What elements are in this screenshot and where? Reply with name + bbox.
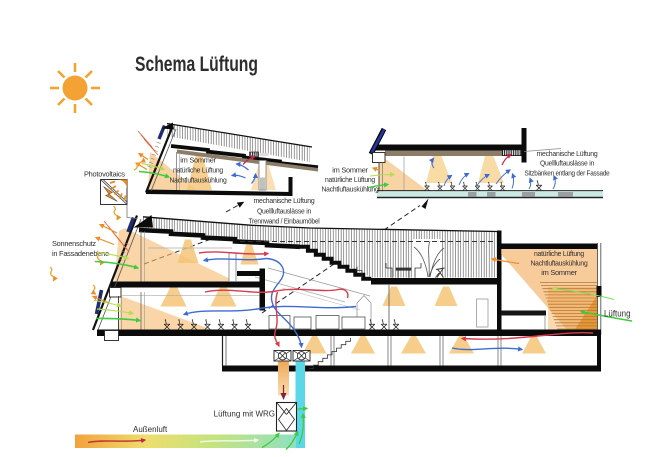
svg-text:Nachtluftauskühlung: Nachtluftauskühlung xyxy=(170,176,227,185)
svg-text:im Sommer: im Sommer xyxy=(180,156,216,165)
svg-text:natürliche Lüftung: natürliche Lüftung xyxy=(173,166,223,175)
svg-text:mechanische Lüftung: mechanische Lüftung xyxy=(537,149,598,158)
svg-text:Lüftung mit WRG: Lüftung mit WRG xyxy=(214,410,275,419)
svg-text:Nachtluftauskühlung: Nachtluftauskühlung xyxy=(322,185,379,194)
svg-text:Lüftung: Lüftung xyxy=(604,309,631,320)
svg-text:im Sommer: im Sommer xyxy=(332,166,368,175)
svg-text:im Sommer: im Sommer xyxy=(541,268,577,277)
svg-text:Nachtluftauskühlung: Nachtluftauskühlung xyxy=(531,259,588,268)
svg-text:natürliche Lüftung: natürliche Lüftung xyxy=(325,175,375,184)
svg-text:Außenluft: Außenluft xyxy=(133,425,168,434)
svg-text:in Fassadenebene: in Fassadenebene xyxy=(52,249,109,258)
svg-text:Photovoltaics: Photovoltaics xyxy=(84,170,125,179)
svg-text:natürliche Lüftung: natürliche Lüftung xyxy=(534,249,584,258)
svg-text:Sonnenschutz: Sonnenschutz xyxy=(52,239,96,248)
svg-text:Quellluftauslässe in: Quellluftauslässe in xyxy=(540,159,594,168)
svg-text:Schema Lüftung: Schema Lüftung xyxy=(135,53,258,76)
svg-text:Sitzbänken entlang der Fassade: Sitzbänken entlang der Fassade xyxy=(525,168,610,177)
svg-text:Quellluftauslässe in: Quellluftauslässe in xyxy=(257,206,311,215)
svg-text:mechanische Lüftung: mechanische Lüftung xyxy=(254,196,315,205)
svg-text:Trennwand / Einbaumöbel: Trennwand / Einbaumöbel xyxy=(249,216,321,225)
